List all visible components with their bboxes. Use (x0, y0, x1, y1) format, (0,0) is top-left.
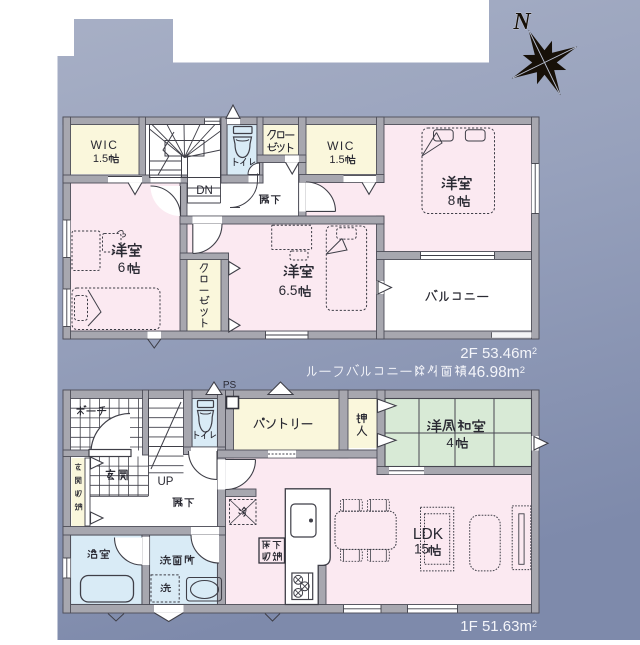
svg-text:2F 53.46m2: 2F 53.46m2 (460, 345, 537, 362)
svg-text:N: N (512, 9, 532, 35)
svg-text:LDK: LDK (413, 526, 444, 543)
svg-text:1F 51.63m2: 1F 51.63m2 (460, 618, 537, 635)
svg-text:1.5: 1.5 (93, 153, 108, 165)
svg-text:6.5: 6.5 (279, 283, 298, 298)
svg-text:15: 15 (414, 542, 429, 557)
svg-text:8: 8 (448, 193, 456, 208)
svg-text:46.98m2: 46.98m2 (468, 364, 525, 381)
svg-text:WIC: WIC (91, 138, 119, 152)
svg-text:1.5: 1.5 (329, 154, 344, 166)
svg-text:DN: DN (196, 185, 213, 197)
svg-text:PS: PS (223, 380, 237, 391)
svg-text:4: 4 (446, 435, 453, 450)
svg-text:UP: UP (158, 476, 174, 488)
svg-text:WIC: WIC (327, 139, 355, 153)
svg-text:6: 6 (118, 260, 126, 275)
